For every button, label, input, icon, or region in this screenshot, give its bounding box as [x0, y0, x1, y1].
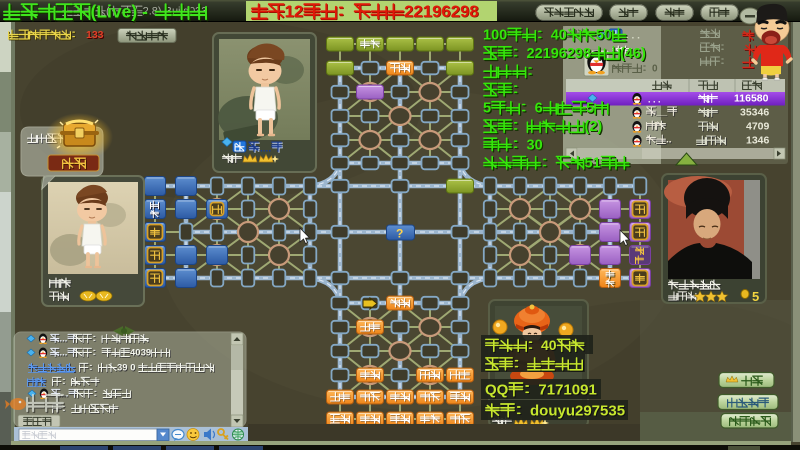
- svg-text:__: __: [655, 107, 668, 118]
- svg-text:. . .: . . .: [648, 95, 661, 105]
- svg-text:116580: 116580: [734, 93, 769, 105]
- svg-text:22196298: 22196298: [404, 2, 479, 21]
- svg-text:5: 5: [586, 101, 594, 117]
- svg-text:0: 0: [652, 64, 658, 75]
- svg-text:50: 50: [596, 28, 612, 44]
- svg-text:4039: 4039: [130, 348, 151, 359]
- svg-text:...: ...: [60, 334, 68, 345]
- svg-text:22196298: 22196298: [527, 46, 592, 62]
- svg-text:4709: 4709: [746, 121, 770, 133]
- svg-text:5: 5: [483, 101, 491, 117]
- svg-text:QQ: QQ: [485, 381, 509, 398]
- svg-text:(2): (2): [585, 119, 603, 135]
- svg-text:35346: 35346: [740, 107, 769, 119]
- svg-text:...: ...: [60, 348, 68, 359]
- svg-text:douyu297535: douyu297535: [530, 402, 625, 419]
- svg-text:(Live) -: (Live) -: [91, 2, 149, 22]
- svg-text:12: 12: [285, 2, 304, 21]
- svg-text:5: 5: [752, 289, 759, 304]
- svg-text:133: 133: [86, 29, 104, 41]
- svg-text:6: 6: [535, 101, 543, 117]
- svg-text:40: 40: [541, 337, 557, 353]
- svg-text:(46): (46): [620, 46, 646, 62]
- svg-text:1346: 1346: [746, 135, 770, 147]
- svg-text:30: 30: [527, 137, 543, 153]
- svg-text:..: ..: [666, 135, 672, 146]
- svg-text:39 0: 39 0: [117, 363, 136, 374]
- svg-text:51: 51: [585, 156, 601, 172]
- svg-text:7171091: 7171091: [538, 381, 596, 398]
- svg-text:40: 40: [551, 28, 567, 44]
- svg-text:100: 100: [483, 28, 507, 44]
- svg-text:. . .: . . .: [626, 31, 640, 42]
- svg-text:?: ?: [396, 227, 403, 241]
- svg-text:....: ....: [260, 144, 271, 155]
